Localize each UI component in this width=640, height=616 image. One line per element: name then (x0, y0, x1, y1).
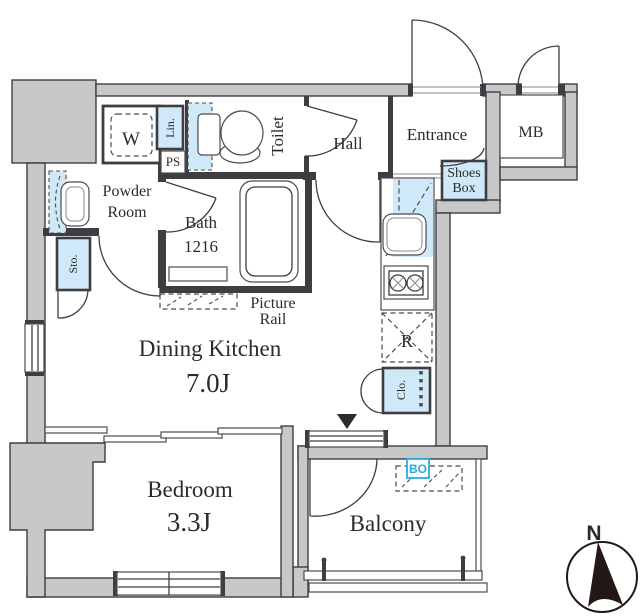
meter-box-label: MB (519, 124, 544, 141)
wall-bedroom-right (281, 426, 293, 597)
bath-label: Bath (185, 213, 218, 232)
balcony-door-window (309, 431, 384, 447)
wall-mb-right (565, 92, 577, 168)
dining-kitchen-size: 7.0J (186, 368, 230, 398)
window-cap (25, 320, 44, 324)
entrance-step (393, 174, 446, 178)
balcony-door (310, 459, 377, 516)
sliding-door-dk-bedroom (45, 427, 282, 442)
dining-kitchen-label: Dining Kitchen (139, 336, 282, 361)
pipe-space-label: PS (166, 154, 180, 169)
washer-label: W (122, 129, 140, 150)
wall-bath-right (305, 179, 312, 288)
toilet-tank (198, 114, 220, 155)
storage-label: Sto. (66, 254, 80, 273)
wall-kitchen-strip (436, 213, 450, 446)
wall-powder-bath-bottom (158, 230, 166, 288)
jamb-mb-left (516, 84, 522, 96)
railing-post-cap (461, 556, 466, 561)
refrigerator-label: R (401, 331, 413, 351)
bath-counter (169, 267, 227, 281)
toilet-label: Toilet (268, 116, 287, 156)
powder-room-label-1: Powder (103, 183, 153, 200)
dk-left-window (25, 324, 44, 372)
wall-step-band (436, 200, 500, 213)
wall-bottom-left-block (10, 443, 105, 597)
railing-outer (309, 583, 487, 592)
hall-dk-door (316, 180, 380, 242)
hall-label: Hall (333, 134, 363, 153)
wall-balcony-top (298, 446, 487, 459)
wall-hall-entrance (388, 96, 393, 180)
picture-rail-hatch (167, 296, 223, 306)
railing-post-cap (322, 558, 327, 563)
exterior-walls (10, 80, 577, 597)
wall-top-band (96, 84, 412, 96)
bath-size-label: 1216 (184, 237, 218, 256)
wall-mb-left (486, 92, 500, 202)
picture-rail-label-2: Rail (260, 311, 287, 328)
wall-left-strip (27, 163, 45, 445)
bathtub (240, 181, 298, 282)
shoes-box-label-2: Box (452, 181, 475, 196)
sliding-door-panel-2 (161, 432, 222, 438)
picture-rail-label-1: Picture (250, 295, 295, 312)
entrance-label: Entrance (407, 125, 467, 144)
bedroom-label: Bedroom (147, 477, 233, 502)
balcony-bo-label: BO (409, 462, 427, 476)
sliding-door-wall (45, 427, 107, 433)
storage-door (58, 290, 88, 318)
mb-sill (522, 87, 558, 93)
sliding-door-panel-1 (104, 436, 166, 442)
railing-inner (304, 571, 482, 580)
railing-post-left (322, 560, 326, 581)
compass: N (567, 522, 637, 612)
entry-marker-triangle (337, 414, 357, 429)
linen-label: Lin. (163, 118, 177, 138)
compass-needle (588, 542, 623, 607)
closet-label: Clo. (394, 380, 408, 400)
wall-top-left-block (12, 80, 96, 163)
railing-post-right (461, 558, 465, 581)
toilet-bowl (221, 111, 263, 155)
bedroom-size: 3.3J (167, 507, 211, 537)
wall-toilet-right-top (304, 96, 309, 106)
balcony-label: Balcony (350, 511, 427, 536)
wall-bath-bottom (160, 286, 312, 293)
wall-toilet-right-bottom (304, 156, 309, 173)
wall-hall-stub-left (303, 172, 316, 180)
washbasin (61, 182, 89, 226)
floor-plan: N W Lin. PS Toilet Hall Entrance MB Shoe… (0, 0, 640, 616)
closet-bifold-door (361, 369, 383, 413)
balcony-right-edge (476, 459, 481, 571)
window-cap (25, 372, 44, 376)
picture-rail-box (160, 294, 237, 309)
entrance-door (412, 20, 483, 91)
powder-room-door (99, 236, 160, 296)
powder-room-label-2: Room (107, 204, 147, 221)
sliding-door-panel-3 (218, 428, 282, 434)
shoes-box-label-1: Shoes (447, 166, 480, 181)
entrance-sill (413, 87, 481, 93)
wall-mb-bottom (500, 167, 577, 180)
floor-plan-drawing: N W Lin. PS Toilet Hall Entrance MB Shoe… (0, 0, 640, 616)
mb-door (518, 46, 559, 88)
compass-north-label: N (586, 522, 601, 545)
